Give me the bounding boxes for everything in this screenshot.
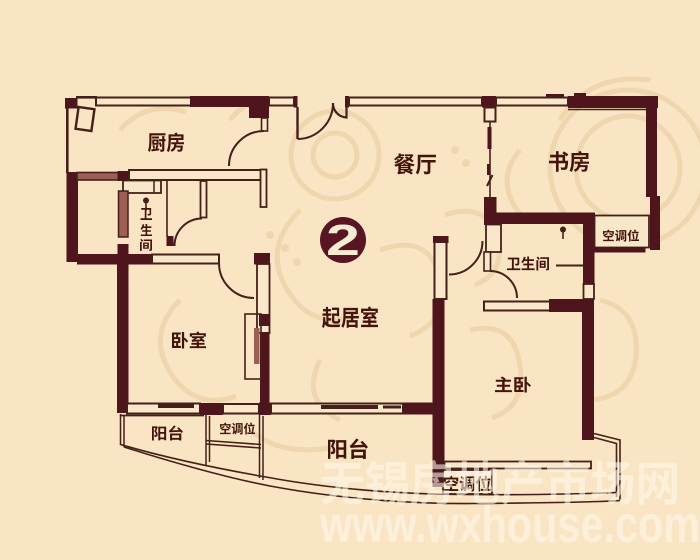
svg-text:2: 2: [326, 216, 360, 265]
svg-text:www.wxhouse.com: www.wxhouse.com: [319, 496, 700, 554]
